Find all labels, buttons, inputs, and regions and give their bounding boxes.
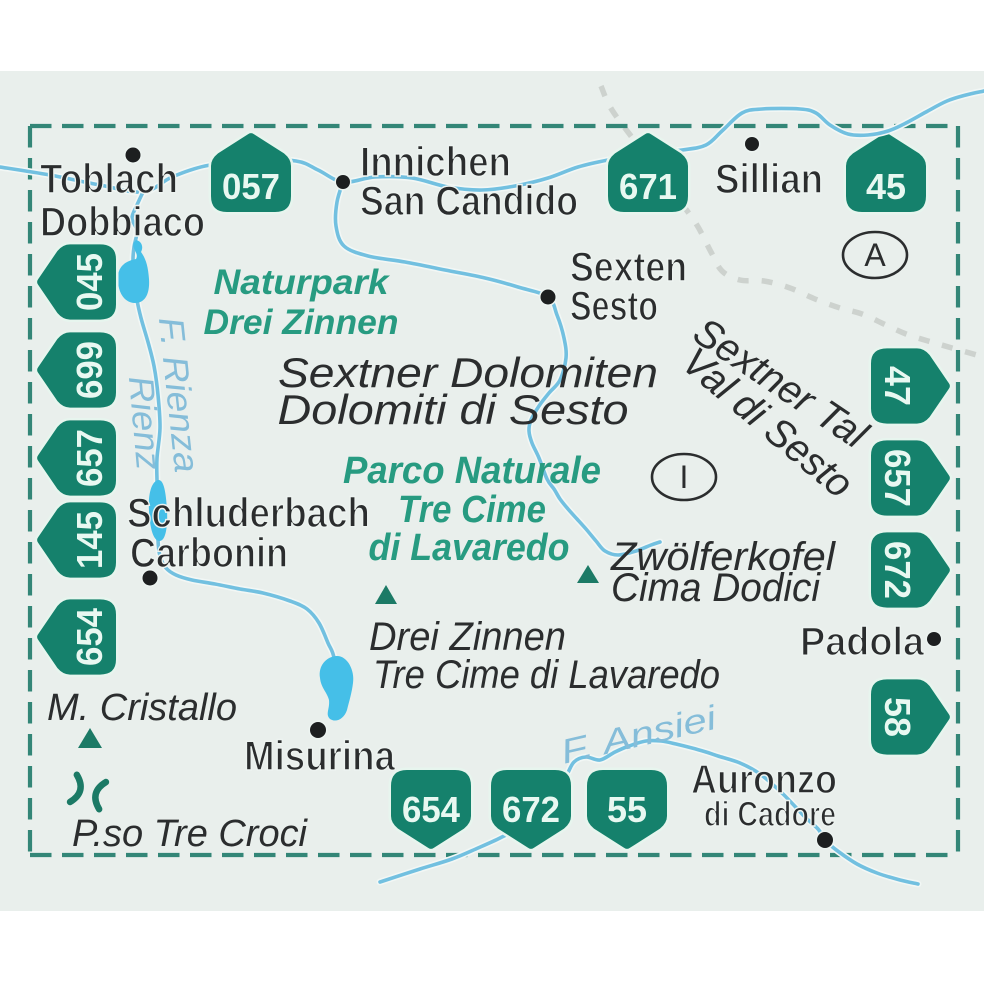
svg-text:Toblach: Toblach <box>40 155 178 202</box>
svg-text:672: 672 <box>502 789 560 830</box>
svg-text:045: 045 <box>69 253 110 311</box>
svg-text:Dolomiti di Sesto: Dolomiti di Sesto <box>278 386 629 433</box>
svg-text:M. Cristallo: M. Cristallo <box>47 687 237 729</box>
svg-text:657: 657 <box>877 449 918 507</box>
svg-text:58: 58 <box>877 697 918 737</box>
svg-text:654: 654 <box>69 608 110 666</box>
svg-text:672: 672 <box>877 541 918 599</box>
svg-text:Dobbiaco: Dobbiaco <box>40 198 205 245</box>
svg-text:47: 47 <box>877 366 918 406</box>
svg-text:Sesto: Sesto <box>570 282 658 329</box>
svg-text:Cima Dodici: Cima Dodici <box>611 566 821 610</box>
svg-text:A: A <box>864 237 886 273</box>
svg-text:671: 671 <box>619 166 677 207</box>
svg-text:San Candido: San Candido <box>360 177 578 224</box>
svg-text:657: 657 <box>69 429 110 487</box>
svg-text:Padola: Padola <box>800 620 925 664</box>
svg-text:di Cadore: di Cadore <box>704 795 836 834</box>
svg-text:654: 654 <box>402 789 460 830</box>
svg-text:Tre Cime: Tre Cime <box>398 489 546 531</box>
svg-text:Misurina: Misurina <box>244 732 396 779</box>
svg-text:di Lavaredo: di Lavaredo <box>369 527 570 569</box>
svg-text:Parco Naturale: Parco Naturale <box>343 450 601 492</box>
svg-text:P.so Tre Croci: P.so Tre Croci <box>72 813 309 855</box>
svg-text:Sillian: Sillian <box>715 155 823 202</box>
svg-text:Rienz: Rienz <box>121 374 168 472</box>
svg-text:Carbonin: Carbonin <box>130 529 288 576</box>
svg-text:Drei Zinnen: Drei Zinnen <box>204 303 399 342</box>
svg-text:Naturpark: Naturpark <box>214 263 391 302</box>
svg-text:699: 699 <box>69 341 110 399</box>
svg-text:057: 057 <box>222 166 280 207</box>
svg-text:I: I <box>680 459 689 495</box>
svg-text:145: 145 <box>69 511 110 569</box>
svg-text:55: 55 <box>607 789 647 830</box>
svg-text:45: 45 <box>866 166 906 207</box>
svg-text:Tre Cime di Lavaredo: Tre Cime di Lavaredo <box>373 653 720 697</box>
